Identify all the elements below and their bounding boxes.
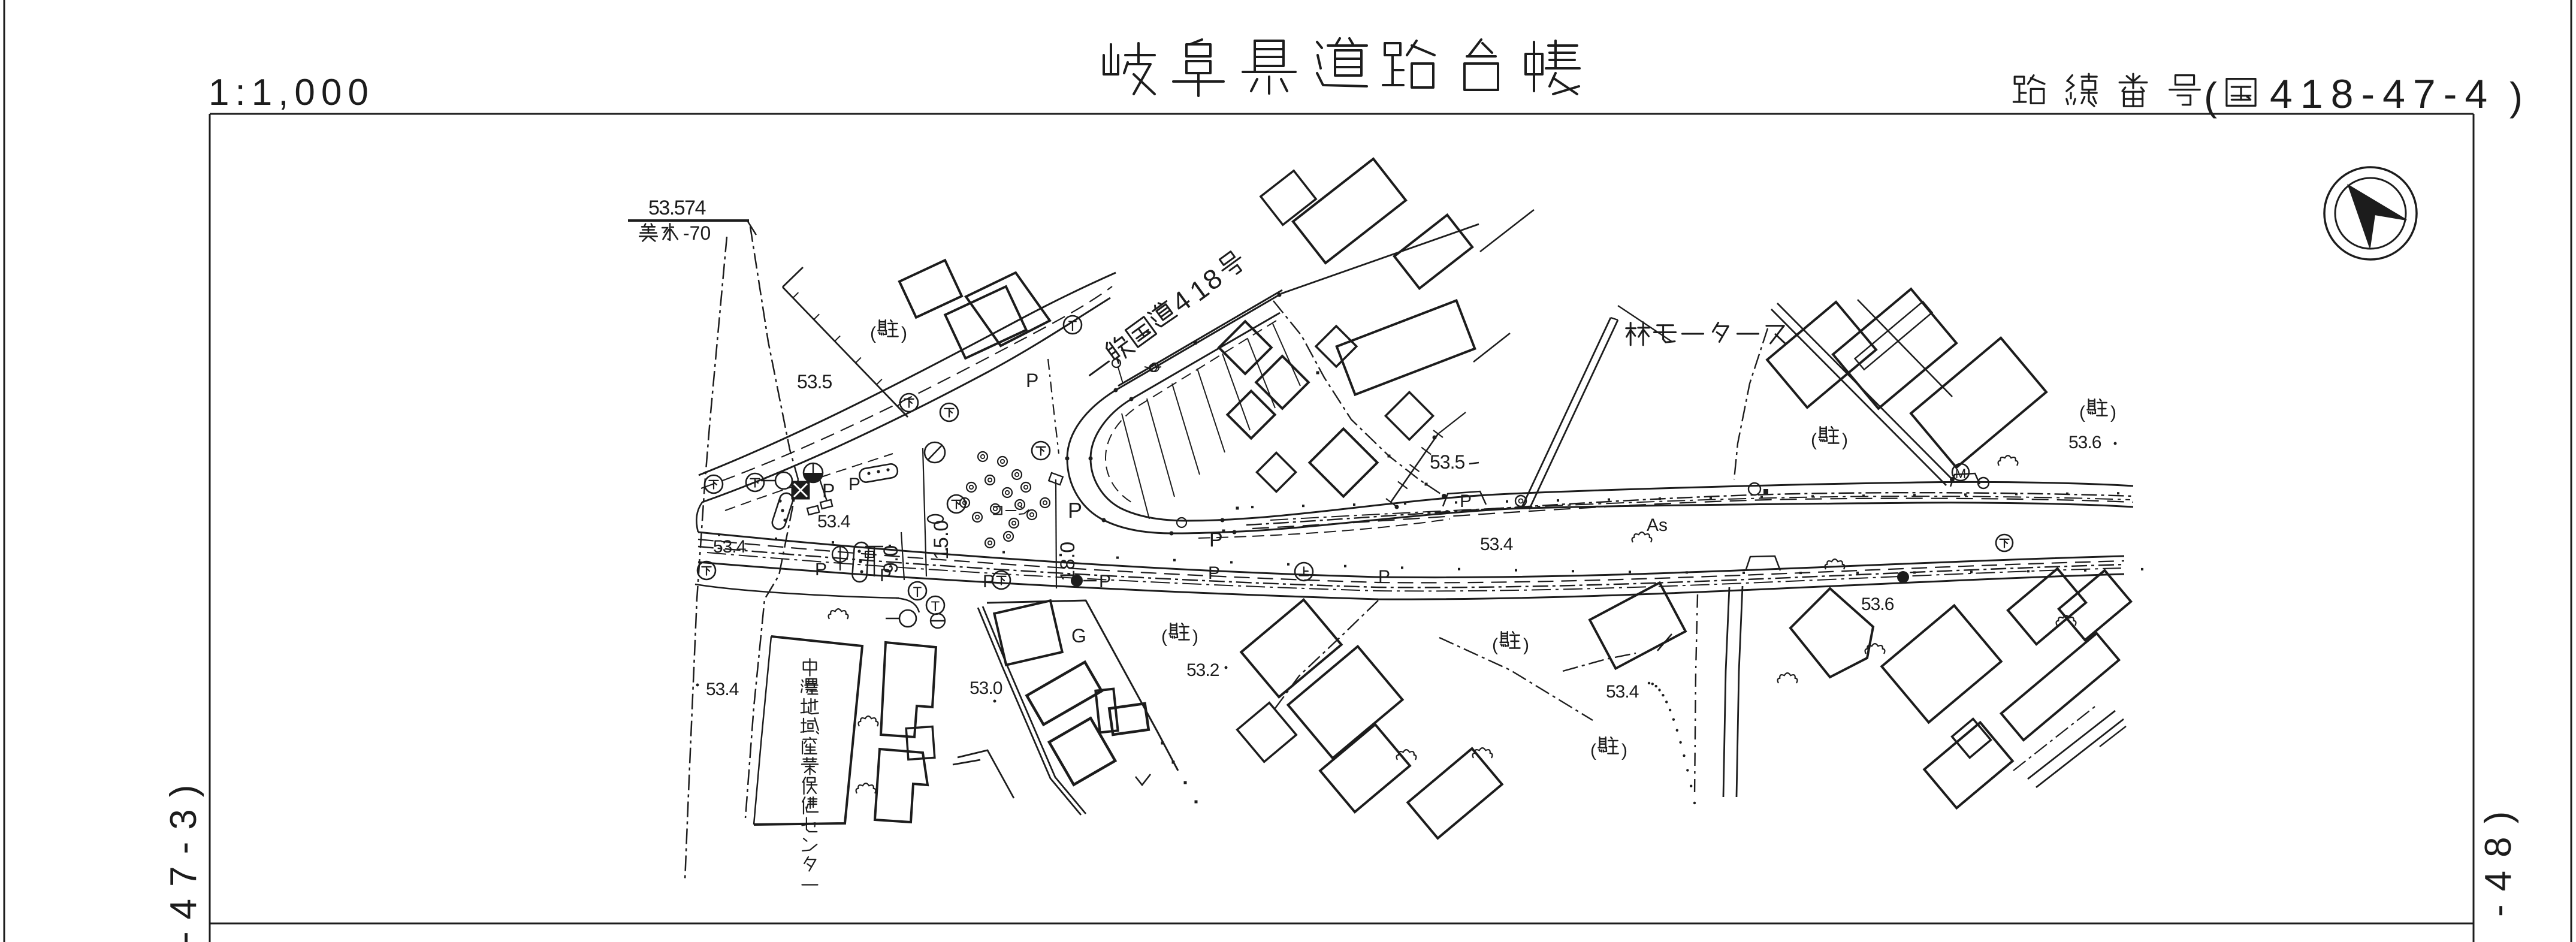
svg-text:(: ( (1161, 627, 1167, 647)
svg-text:P: P (848, 475, 860, 494)
svg-text:53.4: 53.4 (1480, 535, 1513, 554)
svg-text:): ) (901, 324, 907, 343)
svg-text:P: P (1099, 572, 1111, 591)
svg-text:): ) (2509, 74, 2523, 119)
svg-text:53.0: 53.0 (970, 678, 1002, 698)
svg-text:(: ( (870, 324, 876, 343)
svg-text:-48): -48) (2478, 798, 2519, 917)
svg-text:53.574: 53.574 (648, 197, 706, 219)
svg-text:P: P (815, 560, 827, 579)
svg-text:53.2: 53.2 (1186, 660, 1219, 680)
svg-text:P: P (1068, 498, 1082, 523)
svg-text:T: T (1068, 318, 1077, 334)
svg-text:15.0: 15.0 (930, 520, 953, 560)
svg-text:18.0: 18.0 (1056, 542, 1079, 581)
svg-text:): ) (1192, 627, 1198, 647)
svg-text:P: P (1209, 529, 1223, 551)
svg-text:53.4: 53.4 (1606, 682, 1639, 702)
svg-text:): ) (1523, 635, 1529, 655)
svg-text:P: P (822, 480, 835, 502)
svg-text:(: ( (1492, 635, 1498, 655)
svg-text:P: P (1208, 563, 1220, 583)
svg-text:P: P (983, 572, 995, 591)
svg-text:1:1,000: 1:1,000 (209, 72, 375, 113)
svg-text:(: ( (2204, 74, 2217, 119)
svg-text:P: P (1026, 370, 1038, 391)
svg-text:): ) (2110, 403, 2116, 422)
svg-text:(: ( (1590, 741, 1596, 760)
svg-text:53.6: 53.6 (1861, 594, 1894, 614)
svg-text:9.0: 9.0 (880, 545, 902, 573)
svg-text:-70: -70 (683, 222, 711, 244)
svg-text:(: ( (2079, 403, 2085, 422)
svg-text:(: ( (1811, 430, 1817, 450)
svg-text:418-47-4: 418-47-4 (2270, 71, 2495, 117)
svg-text:T: T (931, 599, 940, 615)
svg-text:): ) (1621, 741, 1627, 760)
svg-text:53.6: 53.6 (2068, 433, 2101, 452)
svg-text:53.5: 53.5 (1430, 451, 1464, 473)
svg-text:As: As (1647, 515, 1668, 535)
svg-text:G: G (1071, 625, 1086, 647)
svg-text:53.4: 53.4 (817, 512, 850, 532)
svg-text:): ) (1842, 430, 1848, 450)
svg-text:-47-3): -47-3) (163, 773, 204, 942)
svg-text:T: T (913, 584, 922, 600)
svg-text:53.4: 53.4 (706, 680, 739, 699)
svg-text:P: P (1378, 567, 1390, 587)
svg-text:P: P (1460, 491, 1472, 511)
svg-text:53.5: 53.5 (797, 371, 832, 393)
svg-text:53.4: 53.4 (713, 537, 746, 557)
